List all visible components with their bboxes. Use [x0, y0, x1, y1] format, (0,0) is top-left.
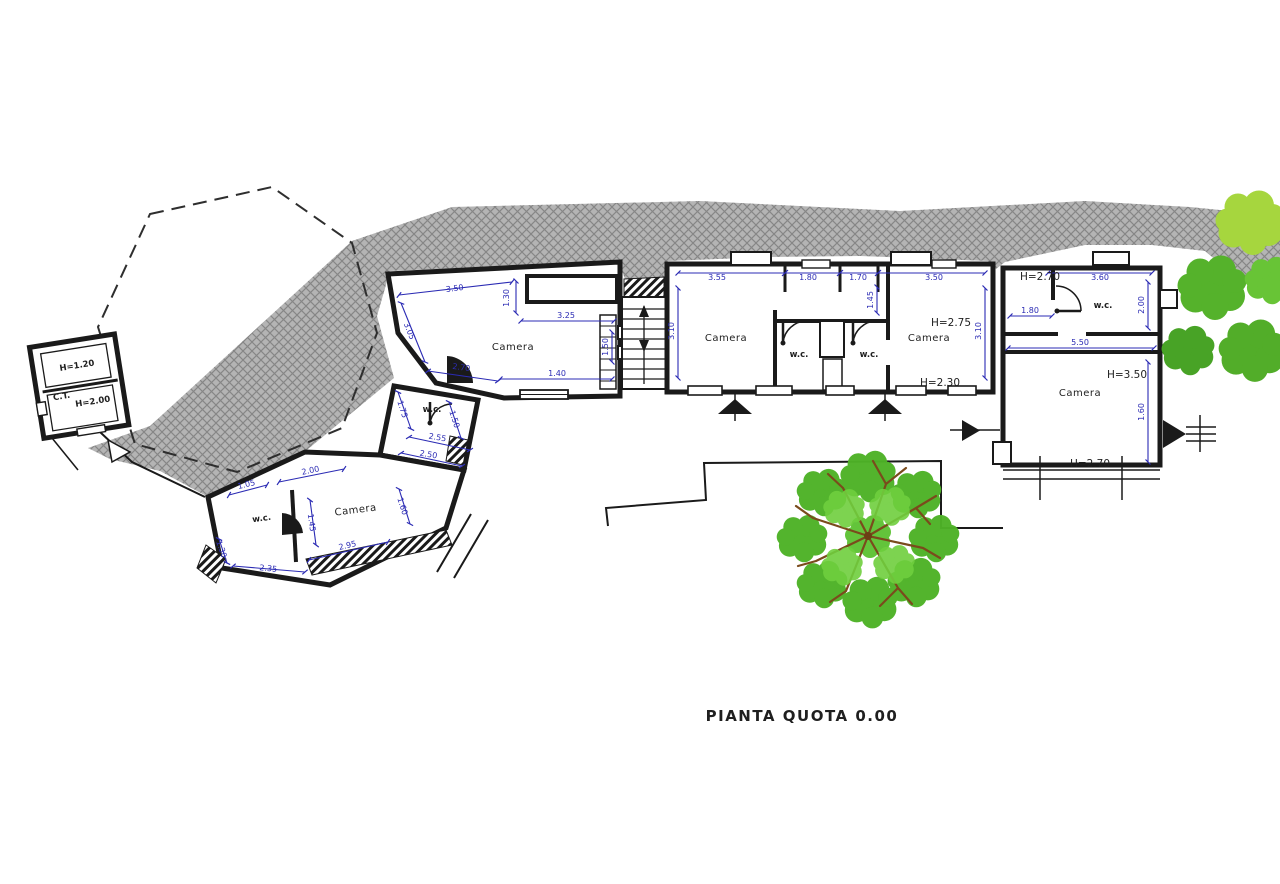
tree-trunk: [864, 532, 872, 540]
room-label-camera-mid-left: Camera: [705, 333, 747, 344]
floor-plan-sheet: H=1.20 C.T. H=2.00: [0, 0, 1280, 884]
height-label-rb-camera: H=3.50: [1107, 369, 1147, 381]
dim-mb-4: 3.50: [925, 273, 943, 282]
dim-rb-mid: 5.50: [1071, 338, 1089, 347]
height-label-rb-bottom: H=2.70: [1070, 458, 1110, 470]
room-label-camera-mid-right: Camera: [908, 333, 950, 344]
dim-mb-2: 1.80: [799, 273, 817, 282]
dim-rb-wc: 1.80: [1021, 306, 1039, 315]
dim-ll-bottom-a: 2.35: [259, 563, 278, 574]
height-label-rb-wc: H=2.70: [1020, 271, 1060, 283]
height-label-mid-right: H=2.75: [931, 317, 971, 329]
room-label-camera-left-wing: Camera: [492, 342, 534, 353]
room-label-wc-mid-right: w.c.: [860, 350, 879, 360]
dim-lw-top-v: 1.30: [502, 289, 511, 307]
chimney: [731, 252, 771, 265]
dim-mb-right-v: 3.10: [974, 322, 983, 340]
dim-rb-camera-v: 1.60: [1137, 403, 1146, 421]
dim-rb-top: 3.60: [1091, 273, 1109, 282]
dim-mb-wc-v: 1.45: [866, 291, 875, 309]
dim-lw-inner: 3.25: [557, 311, 575, 320]
room-label-camera-right-building: Camera: [1059, 388, 1101, 399]
dim-mb-left-v: 3.10: [667, 322, 676, 340]
room-label-wc-mid-left: w.c.: [790, 350, 809, 360]
dim-lw-right-v: 1.50: [601, 338, 610, 356]
chimney: [1093, 252, 1129, 265]
outbuilding: H=1.20 C.T. H=2.00: [28, 334, 130, 442]
room-label-wc-annex: w.c.: [423, 405, 442, 415]
height-label-mid-bottom: H=2.30: [920, 377, 960, 389]
dim-mb-3: 1.70: [849, 273, 867, 282]
porch-canopy: [527, 276, 617, 302]
dim-lw-bottom: 1.40: [548, 369, 566, 378]
room-label-wc-right-building: w.c.: [1094, 301, 1113, 311]
dim-mb-1: 3.55: [708, 273, 726, 282]
drawing-title: PIANTA QUOTA 0.00: [706, 707, 899, 725]
chimney: [891, 252, 931, 265]
dim-rb-right-v: 2.00: [1137, 296, 1146, 314]
